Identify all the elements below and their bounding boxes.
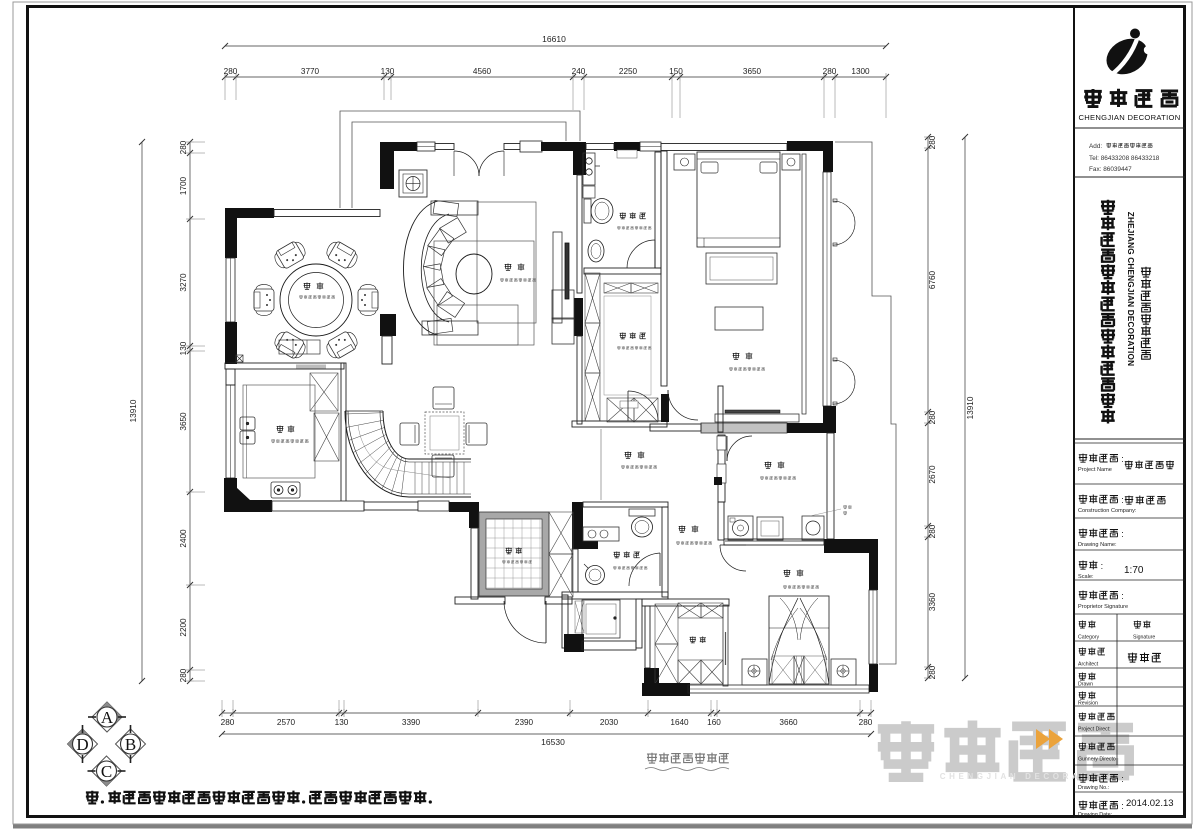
svg-text:3390: 3390 xyxy=(402,718,421,727)
svg-text:Add:: Add: xyxy=(1089,143,1102,150)
svg-text:280: 280 xyxy=(928,524,937,538)
svg-text:Architect: Architect xyxy=(1078,662,1099,668)
svg-text:130: 130 xyxy=(335,718,349,727)
svg-text:2250: 2250 xyxy=(619,67,638,76)
svg-text:160: 160 xyxy=(707,718,721,727)
svg-text:1:70: 1:70 xyxy=(1124,565,1144,576)
svg-text:16530: 16530 xyxy=(541,737,565,747)
svg-text:240: 240 xyxy=(572,67,586,76)
svg-text:1700: 1700 xyxy=(179,176,188,195)
svg-text:280: 280 xyxy=(179,668,188,682)
svg-text:Scale:: Scale: xyxy=(1078,574,1094,580)
svg-text:280: 280 xyxy=(823,67,837,76)
svg-text:Drawing No.:: Drawing No.: xyxy=(1078,785,1109,791)
svg-text:CHENGJIAN DECORATION: CHENGJIAN DECORATION xyxy=(940,772,1115,781)
svg-text::: : xyxy=(1121,529,1124,539)
svg-text:13910: 13910 xyxy=(966,396,975,419)
svg-text:3270: 3270 xyxy=(179,273,188,292)
svg-text:Tel: 86433208 86433218: Tel: 86433208 86433218 xyxy=(1089,155,1160,162)
svg-text:ZHEJIANG CHENGJIAN DECORATION: ZHEJIANG CHENGJIAN DECORATION xyxy=(1126,212,1135,366)
svg-text:16610: 16610 xyxy=(542,34,566,44)
svg-text:C: C xyxy=(101,762,112,781)
svg-text:1640: 1640 xyxy=(670,718,689,727)
svg-text:Project Name: Project Name xyxy=(1078,467,1112,473)
svg-text:Category: Category xyxy=(1078,635,1099,641)
svg-text:13910: 13910 xyxy=(129,399,138,422)
svg-text:280: 280 xyxy=(179,140,188,154)
svg-text:Drawing Date:: Drawing Date: xyxy=(1078,812,1112,818)
svg-text:2390: 2390 xyxy=(515,718,534,727)
svg-text:3650: 3650 xyxy=(179,412,188,431)
svg-text::: : xyxy=(1121,454,1124,464)
svg-text:280: 280 xyxy=(859,718,873,727)
svg-text:Project Direct:: Project Direct: xyxy=(1078,727,1111,733)
svg-text::: : xyxy=(1101,561,1104,571)
svg-text:Proprietor Signature: Proprietor Signature xyxy=(1078,604,1128,610)
svg-text:Drawn: Drawn xyxy=(1078,682,1093,688)
svg-text:2670: 2670 xyxy=(928,465,937,484)
svg-text::: : xyxy=(1121,591,1124,601)
svg-text:280: 280 xyxy=(928,135,937,149)
svg-text:1300: 1300 xyxy=(851,67,870,76)
svg-text:3660: 3660 xyxy=(779,718,798,727)
svg-text:D: D xyxy=(76,735,88,754)
svg-text:6760: 6760 xyxy=(928,270,937,289)
svg-text:Construction Company:: Construction Company: xyxy=(1078,508,1137,514)
svg-text:CHENGJIAN DECORATION: CHENGJIAN DECORATION xyxy=(1078,113,1180,122)
svg-text:2400: 2400 xyxy=(179,529,188,548)
svg-text:2570: 2570 xyxy=(277,718,296,727)
svg-text:130: 130 xyxy=(179,341,188,355)
svg-text:2014.02.13: 2014.02.13 xyxy=(1126,798,1174,809)
svg-text::: : xyxy=(1121,495,1124,505)
svg-text::: : xyxy=(1121,774,1124,784)
svg-text:4560: 4560 xyxy=(473,67,492,76)
svg-text:2200: 2200 xyxy=(179,618,188,637)
svg-text:150: 150 xyxy=(669,67,683,76)
svg-text::: : xyxy=(1121,801,1124,811)
svg-text:2030: 2030 xyxy=(600,718,619,727)
svg-text:Fax: 86039447: Fax: 86039447 xyxy=(1089,166,1132,173)
svg-text:3650: 3650 xyxy=(743,67,762,76)
svg-text:B: B xyxy=(125,735,136,754)
svg-text:A: A xyxy=(101,708,114,727)
svg-text:3770: 3770 xyxy=(301,67,320,76)
svg-text:Signature: Signature xyxy=(1133,635,1155,641)
svg-text:280: 280 xyxy=(928,410,937,424)
svg-text:280: 280 xyxy=(221,718,235,727)
svg-text:130: 130 xyxy=(381,67,395,76)
svg-text:280: 280 xyxy=(224,67,238,76)
svg-text:280: 280 xyxy=(928,665,937,679)
svg-text:Drawing Name:: Drawing Name: xyxy=(1078,542,1117,548)
svg-text:3360: 3360 xyxy=(928,592,937,611)
svg-text:Revision: Revision xyxy=(1078,701,1098,707)
svg-text:Gunnery Directo: Gunnery Directo xyxy=(1078,757,1116,763)
